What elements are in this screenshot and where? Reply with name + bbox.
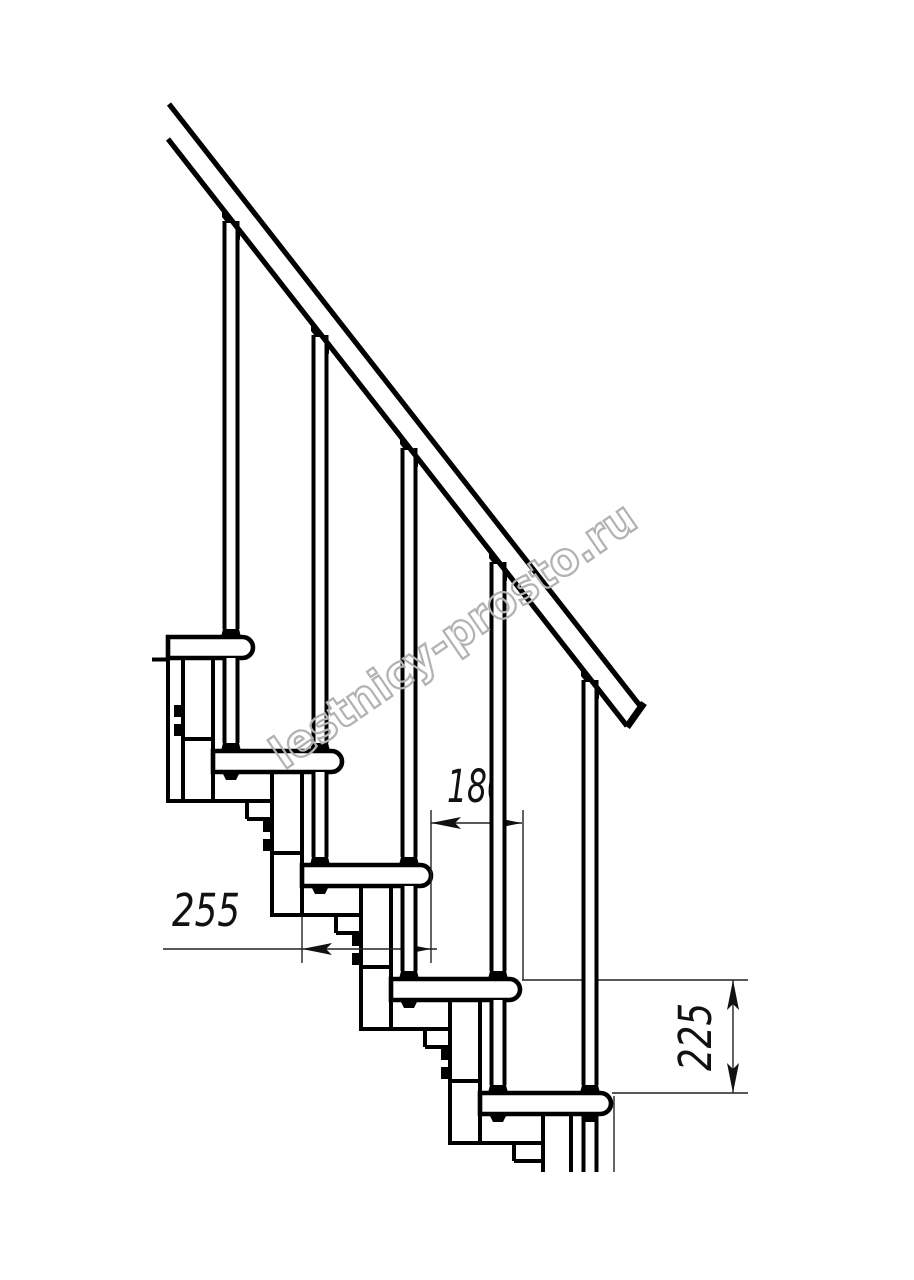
- dimension-run-180: 180: [431, 760, 523, 980]
- tread-1: [168, 637, 253, 658]
- drawing-canvas: 180 255 225: [0, 0, 914, 1280]
- tread-4: [391, 979, 520, 1000]
- support-module-2: [247, 772, 361, 915]
- support-module-3: [336, 886, 450, 1029]
- tread-3: [302, 865, 431, 886]
- support-module-1: [152, 658, 272, 801]
- dimension-riser-225: 225: [522, 980, 748, 1172]
- tread-5: [480, 1093, 611, 1114]
- support-module-4: [425, 1000, 543, 1143]
- baluster-2: [310, 323, 330, 894]
- staircase-technical-drawing: 180 255 225: [0, 0, 914, 1280]
- baluster-1: [221, 209, 241, 780]
- baluster-3: [399, 436, 419, 1008]
- dim-label-255: 255: [172, 884, 240, 937]
- dim-label-225: 225: [669, 1003, 722, 1071]
